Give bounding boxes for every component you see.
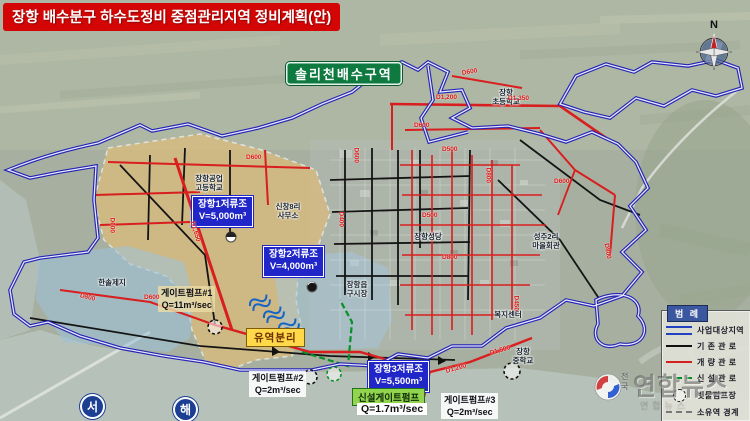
sewage-plan-map: 장항 배수분구 하수도정비 중점관리지역 정비계획(안) 솔리천배수구역 장항1…: [0, 0, 750, 421]
pipe-diameter-label: D1,350: [508, 95, 529, 102]
storage-tank-label-1: 장항1저류조 V=5,000m³: [192, 196, 253, 227]
page-title: 장항 배수분구 하수도정비 중점관리지역 정비계획(안): [3, 3, 340, 31]
improved-pipe-line-icon: [666, 361, 692, 363]
storage-tank-label-2: 장항2저류조 V=4,000m³: [263, 246, 324, 277]
gate-pump-label-3: 게이트펌프#3 Q=2m³/sec: [441, 393, 498, 419]
pipe-diameter-label: D600: [414, 122, 430, 129]
flow-split-label: 유역분리: [246, 328, 305, 347]
gate-pump-label-1: 게이트펌프#1 Q=11m³/sec: [158, 286, 215, 312]
sea-label-sea: 해: [175, 399, 196, 420]
gate-pump-label-2: 게이트펌프#2 Q=2m³/sec: [249, 371, 306, 397]
watermark-subtext: 연합뉴스: [640, 399, 689, 412]
compass-north-label: N: [710, 19, 718, 31]
pipe-diameter-label: D600: [109, 218, 116, 234]
place-label: 성주2리 마을회관: [524, 232, 568, 250]
pipe-diameter-label: D500: [422, 212, 438, 219]
pipe-diameter-label: D800: [485, 168, 492, 184]
place-label: 장항읍 구시장: [338, 280, 376, 298]
watermark-brand: 연합뉴스: [633, 367, 729, 403]
legend-item: 기 존 관 로: [662, 338, 750, 354]
pipe-diameter-label: D1,200: [436, 94, 457, 101]
legend-title: 범 례: [667, 305, 708, 322]
pipe-diameter-label: D400: [338, 212, 345, 228]
pipe-diameter-label: D450: [513, 296, 520, 312]
project-area-line-icon: [666, 326, 692, 335]
pipe-diameter-label: D800: [442, 254, 458, 261]
legend-item: 사업대상지역: [662, 322, 750, 338]
new-gate-pump-capacity: Q=1.7m³/sec: [357, 403, 427, 415]
place-label: 장항공업 고등학교: [186, 174, 232, 192]
compass-rose: N: [692, 16, 736, 78]
watermark-prefix: 전 국: [621, 372, 628, 391]
drainage-zone-badge: 솔리천배수구역: [286, 62, 402, 85]
place-label: 복지센터: [487, 310, 529, 319]
pipe-diameter-label: D600: [144, 294, 160, 301]
place-label: 한솔제지: [90, 278, 134, 287]
pipe-diameter-label: D600: [554, 178, 570, 185]
place-label: 장항성당: [406, 232, 450, 241]
news-agency-logo-icon: [593, 372, 623, 402]
pipe-diameter-label: D600: [353, 148, 360, 164]
sea-label-west: 서: [82, 396, 103, 417]
place-label: 신창8리 사무소: [268, 202, 308, 220]
pipe-diameter-label: D500: [442, 146, 458, 153]
pipe-diameter-label: D600: [246, 154, 262, 161]
existing-pipe-line-icon: [666, 345, 692, 347]
